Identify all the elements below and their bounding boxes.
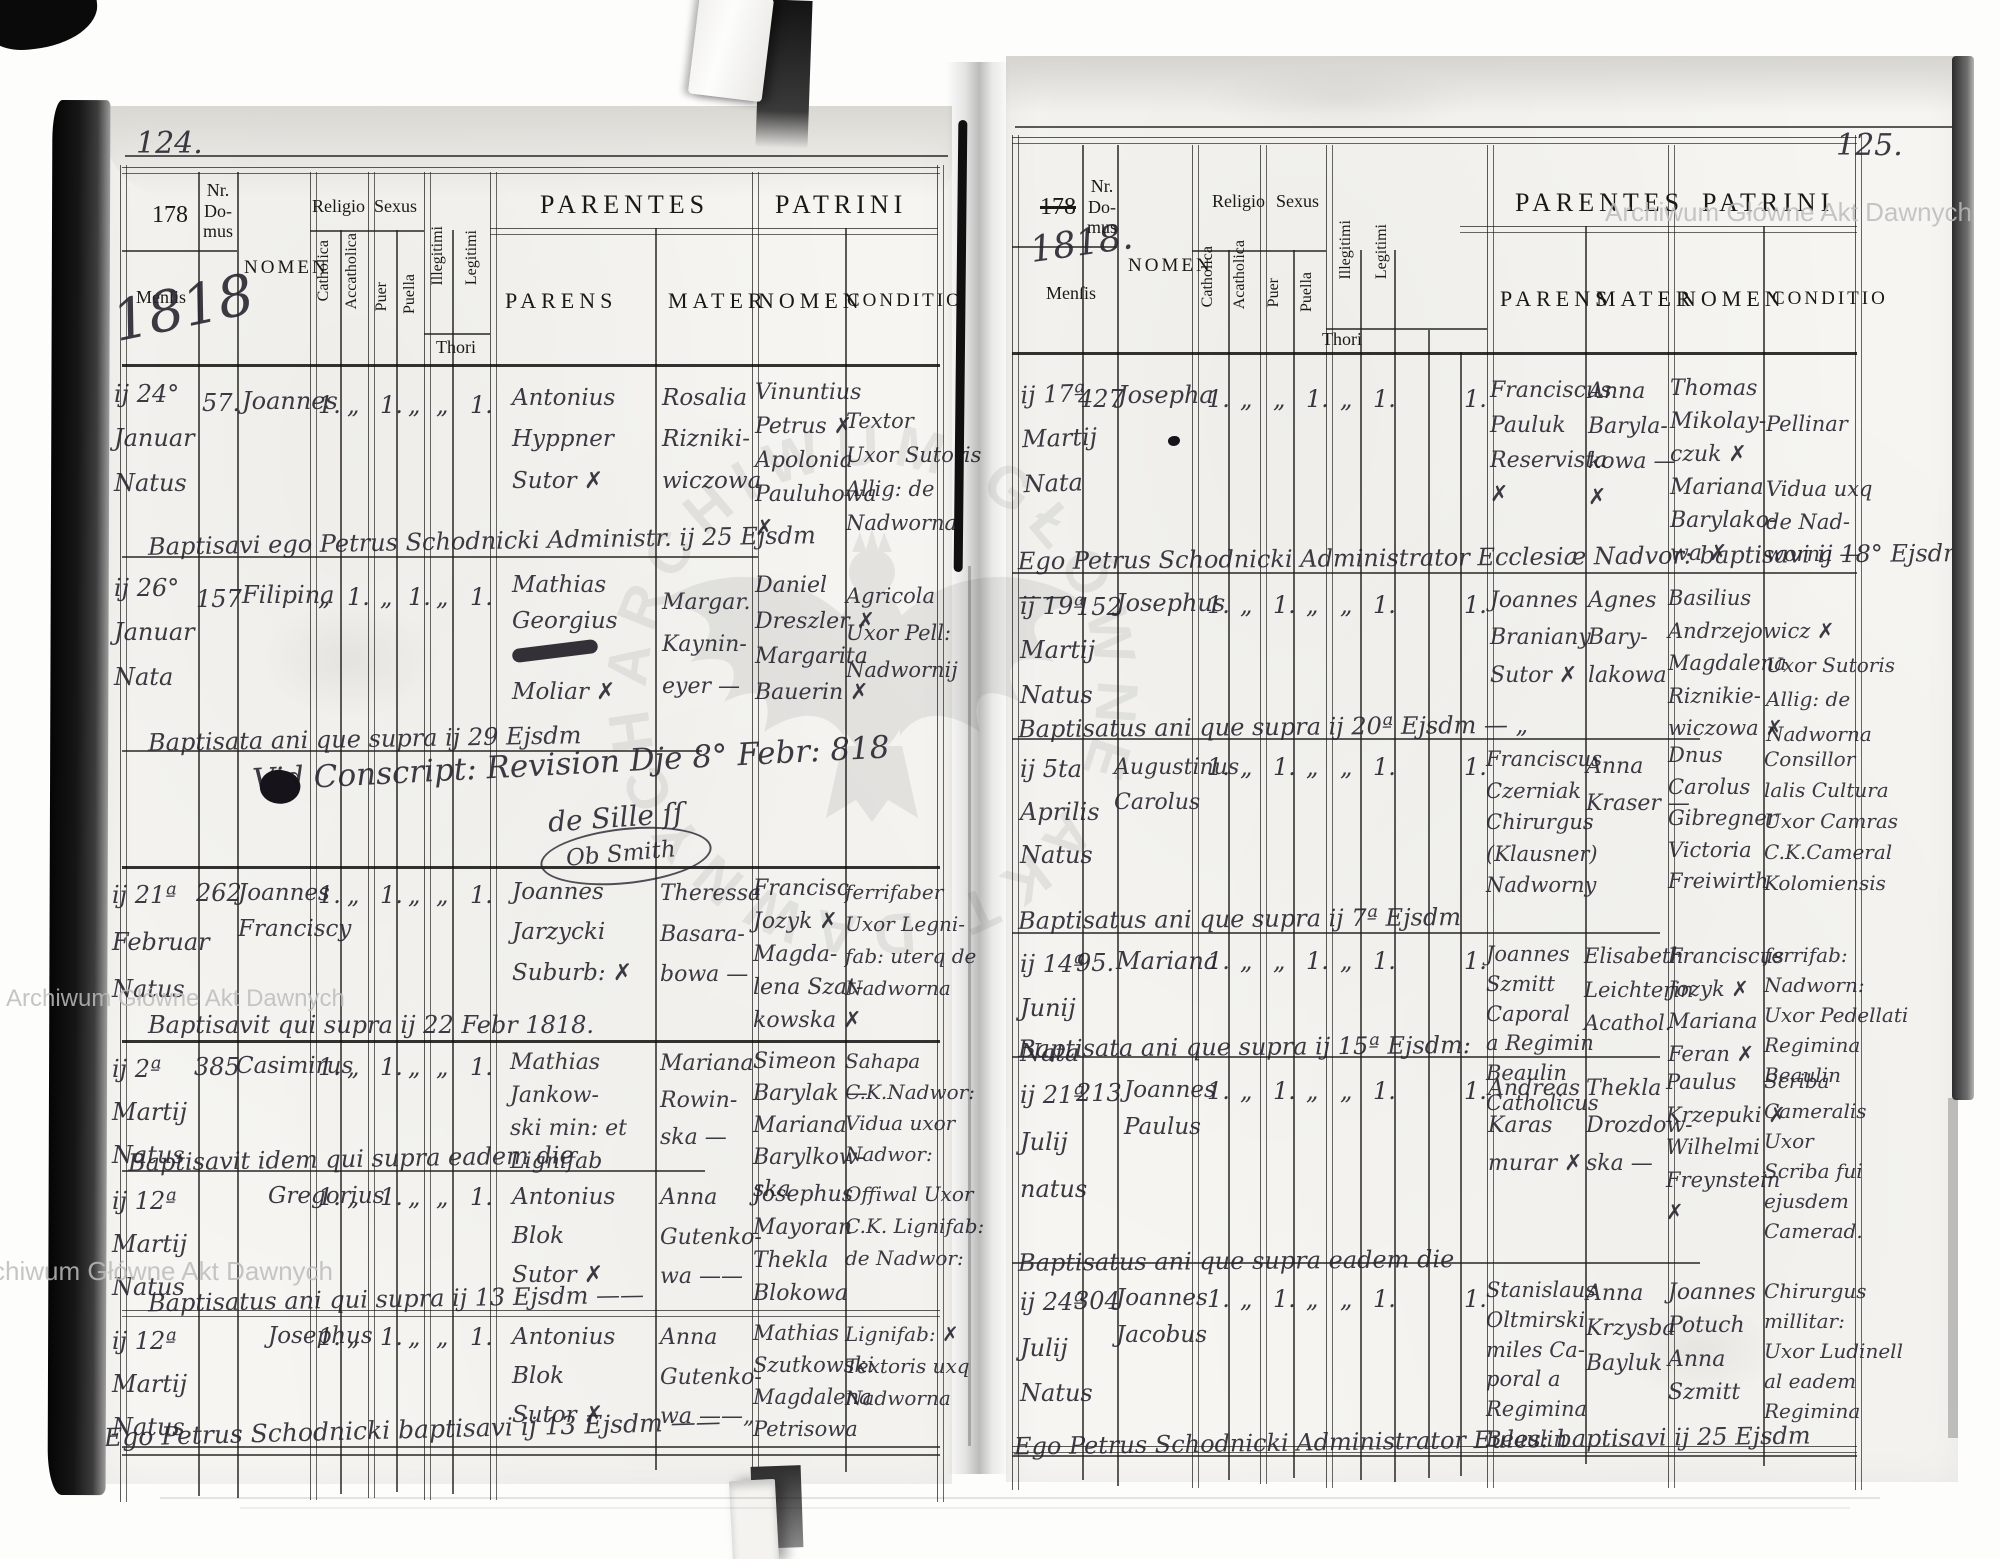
col-serial: 178 xyxy=(152,198,188,233)
mark-right-r3: „ xyxy=(1306,750,1318,785)
e3-baptism-note: Baptisatus ani que supra ij 7ª Ejsdm xyxy=(1018,900,1461,939)
mark-left-r6: „ xyxy=(436,1320,448,1355)
mark-left-r5: „ xyxy=(408,1180,420,1215)
mark-left-r3: 1. xyxy=(318,878,341,913)
e4-mater: Mariana Rowin- ska — xyxy=(660,1046,754,1157)
mark-left-r2: „ xyxy=(380,580,392,615)
col-puer: Puer xyxy=(1266,278,1282,307)
e5-baptism-note: Baptisatus ani que supra eadem die xyxy=(1018,1242,1455,1281)
register-book-scan: ARCHIWUM GŁÓWNE AKT DAWNYCH 124.178Nr. D… xyxy=(0,0,2000,1559)
grid-hline xyxy=(1015,126,1952,128)
e6-nomen: Joannes Jacobus xyxy=(1116,1280,1208,1354)
mark-left-r4: „ xyxy=(347,1050,359,1085)
mark-left-r1: 1. xyxy=(380,388,403,423)
grid-hline xyxy=(1012,352,1857,355)
col-patrini: PATRINI xyxy=(775,186,907,224)
mark-left-r2: „ xyxy=(318,580,330,615)
e2-baptism-note: Baptisatus ani que supra ij 20ª Ejsdm — … xyxy=(1018,708,1528,747)
mark-left-r1: „ xyxy=(436,388,448,423)
mark-right-r1: 1. xyxy=(1207,382,1230,417)
page-number-right: 125. xyxy=(1836,124,1903,168)
page-stack-line xyxy=(240,1507,1850,1509)
mark-left-r5: 1. xyxy=(318,1180,341,1215)
col-puella: Puella xyxy=(1299,272,1315,312)
mark-right-r1-extra: 1. xyxy=(1464,382,1487,417)
e2-mensis: ij 26° Januar Nata xyxy=(114,566,195,699)
col-mensis: Menſis xyxy=(1046,280,1096,306)
mark-right-r1: 1. xyxy=(1306,382,1329,417)
mark-left-r2: 1. xyxy=(347,580,370,615)
mark-right-r3: 1. xyxy=(1273,750,1296,785)
e6-patrini-nomen: Joannes Potuch Anna Szmitt xyxy=(1668,1276,1756,1410)
e1-house-nr: 427 xyxy=(1078,382,1124,417)
e1-parens: Antonius Hyppner Sutor ✗ xyxy=(512,378,615,502)
col-patrini-nomen: NOMEN xyxy=(1680,283,1786,315)
mark-left-r2: 1. xyxy=(470,580,493,615)
mark-right-r1: „ xyxy=(1273,382,1285,417)
mark-right-r5: 1. xyxy=(1373,1074,1396,1109)
center-fold-shadow xyxy=(946,62,1010,1474)
col-illegitimi: Illegitimi xyxy=(1338,220,1354,280)
mark-right-r1: „ xyxy=(1340,382,1352,417)
page-number-left: 124. xyxy=(136,122,203,166)
mark-left-r5: „ xyxy=(436,1180,448,1215)
e2-conditio: Agricola Uxor Pell: Nadwornij xyxy=(846,578,958,688)
e1-mensis: ij 24° Januar Natus xyxy=(114,372,195,505)
grid-vline xyxy=(1260,145,1267,1484)
col-thori: Thori xyxy=(1322,326,1362,352)
mark-left-r6: „ xyxy=(347,1320,359,1355)
e6-mater: Anna Krzysba Bayluk xyxy=(1586,1276,1675,1382)
mark-right-r4-extra: 1. xyxy=(1464,944,1487,979)
col-religio: Religio xyxy=(1212,188,1265,214)
mark-left-r5: 1. xyxy=(470,1180,493,1215)
mark-left-r2: „ xyxy=(436,580,448,615)
bookmark-ribbon-bottom xyxy=(729,1479,779,1559)
bookmark-ribbon-top xyxy=(688,0,774,102)
grid-vline xyxy=(1012,135,1019,1490)
mark-right-r2: 1. xyxy=(1373,588,1396,623)
grid-hline xyxy=(122,167,940,174)
mark-left-r6: 1. xyxy=(470,1320,493,1355)
mark-left-r6: „ xyxy=(408,1320,420,1355)
mark-left-r5: 1. xyxy=(380,1180,403,1215)
e2-parens: Mathias Georgius Moliar ✗ xyxy=(512,568,618,711)
e5-conditio: Scriba Cameralis Uxor Scriba fui ejusdem… xyxy=(1764,1066,1867,1246)
e4-house-nr: 95. xyxy=(1076,946,1114,981)
col-sexus: Sexus xyxy=(1276,188,1319,214)
mark-right-r6: „ xyxy=(1240,1282,1252,1317)
mark-right-r4: „ xyxy=(1273,944,1285,979)
archive-watermark-mid-left: Archiwum Główne Akt Dawnych xyxy=(6,985,345,1013)
e2-conditio: Uxor Sutoris Allig: de Nadworna xyxy=(1766,648,1895,751)
mark-right-r6-extra: 1. xyxy=(1464,1282,1487,1317)
e3-baptism-note: Baptisavit qui supra ij 22 Febr 1818. xyxy=(148,1008,594,1043)
e2-mater: Agnes Bary- lakowa xyxy=(1588,582,1667,694)
e2-mater: Margar. Kaynin- eyer — xyxy=(662,582,750,707)
mark-right-r4: 1. xyxy=(1207,944,1230,979)
grid-hline xyxy=(310,230,424,232)
col-mater: MATER xyxy=(668,285,768,317)
col-legitimi: Legitimi xyxy=(1374,224,1390,279)
grid-hline xyxy=(122,364,940,367)
e5-parens: Andreas Karas murar ✗ xyxy=(1488,1070,1583,1182)
mark-right-r3: 1. xyxy=(1373,750,1396,785)
mark-left-r1: 1. xyxy=(470,388,493,423)
col-nr-domus: Nr. Do- mus xyxy=(199,180,237,242)
e3-conditio: Consillor lalis Cultura Uxor Camras C.K.… xyxy=(1764,744,1898,899)
mark-left-r3: 1. xyxy=(470,878,493,913)
grid-hline xyxy=(1012,137,1857,144)
e4-house-nr: 385 xyxy=(194,1050,240,1085)
mark-right-r6: 1. xyxy=(1207,1282,1230,1317)
e1-house-nr: 57. xyxy=(202,386,240,421)
col-parentes: PARENTES xyxy=(540,186,709,224)
e1-mater: Rosalia Rizniki- wiczowa xyxy=(662,378,761,502)
mark-right-r1: „ xyxy=(1240,382,1252,417)
e6-conditio: Chirurgus millitar: Uxor Ludinell al ead… xyxy=(1764,1276,1903,1426)
grid-hline xyxy=(490,228,938,235)
col-illegitimi: Illegitimi xyxy=(430,226,446,286)
mark-right-r4: „ xyxy=(1340,944,1352,979)
mark-left-r4: 1. xyxy=(380,1050,403,1085)
col-religio: Religio xyxy=(312,193,365,219)
e2-house-nr: 152 xyxy=(1076,590,1122,625)
grid-hline xyxy=(122,866,940,869)
mark-right-r3: „ xyxy=(1240,750,1252,785)
mark-right-r6: „ xyxy=(1306,1282,1318,1317)
mark-left-r4: 1. xyxy=(470,1050,493,1085)
dark-corner-top-left xyxy=(0,0,101,54)
archive-watermark-bottom-left: Archiwum Główne Akt Dawnych xyxy=(0,1256,333,1287)
grid-hline xyxy=(122,1454,940,1456)
book-right-edge-lower xyxy=(1948,1098,1958,1438)
mark-right-r5: 1. xyxy=(1207,1074,1230,1109)
mark-right-r3-extra: 1. xyxy=(1464,750,1487,785)
e3-mater: Theressa Basara- bowa — xyxy=(660,874,761,996)
mark-left-r1: „ xyxy=(347,388,359,423)
col-puer: Puer xyxy=(374,282,390,311)
col-acatholica: Acatholica xyxy=(1232,240,1248,309)
page-stack-line xyxy=(160,1497,1880,1499)
col-catholica: Catholica xyxy=(1200,246,1216,307)
mark-left-r2: 1. xyxy=(408,580,431,615)
mark-left-r1: „ xyxy=(408,388,420,423)
e5-patrini-nomen: Josephus Mayoran Thekla Blokowa xyxy=(753,1178,853,1310)
e6-house-nr: 304 xyxy=(1074,1284,1120,1319)
col-acatholica: Accatholica xyxy=(344,233,360,309)
e3-parens: Joannes Jarzycki Suburb: ✗ xyxy=(512,872,632,993)
mark-right-r2-extra: 1. xyxy=(1464,588,1487,623)
e5-house-nr: 213 xyxy=(1076,1076,1122,1111)
mark-right-r2: 1. xyxy=(1273,588,1296,623)
e4-nomen: Mariana xyxy=(1116,944,1218,979)
mark-right-r5: „ xyxy=(1240,1074,1252,1109)
mark-left-r3: 1. xyxy=(380,878,403,913)
e1-mater: Anna Baryla- kowa — ✗ xyxy=(1588,374,1676,515)
col-conditio: CONDITIO xyxy=(1772,285,1888,313)
paper-smudge xyxy=(1200,64,1480,134)
mark-right-r2: „ xyxy=(1306,588,1318,623)
col-legitimi: Legitimi xyxy=(464,230,480,285)
mark-right-r3: „ xyxy=(1340,750,1352,785)
col-catholica: Catholica xyxy=(316,240,332,301)
mark-right-r6: „ xyxy=(1340,1282,1352,1317)
mark-left-r3: „ xyxy=(436,878,448,913)
col-puella: Puella xyxy=(402,274,418,314)
mark-right-r6: 1. xyxy=(1273,1282,1296,1317)
mark-right-r4: 1. xyxy=(1306,944,1329,979)
e5-mater: Anna Gutenko- wa —— xyxy=(660,1178,762,1297)
mark-left-r3: „ xyxy=(408,878,420,913)
mark-right-r6: 1. xyxy=(1373,1282,1396,1317)
mark-left-r4: „ xyxy=(436,1050,448,1085)
e5-nomen: Joannes Paulus xyxy=(1124,1072,1216,1146)
mark-right-r5: 1. xyxy=(1273,1074,1296,1109)
grid-hline xyxy=(125,155,948,157)
mark-left-r3: „ xyxy=(347,878,359,913)
e3-mensis: ij 5ta Aprilis Natus xyxy=(1020,748,1100,878)
paper-smudge xyxy=(260,600,440,720)
e2-house-nr: 157 xyxy=(196,582,242,617)
e3-house-nr: 262 xyxy=(196,876,242,911)
e3-patrini-nomen: Dnus Carolus Gibregner Victoria Freiwirt… xyxy=(1668,740,1777,898)
col-sexus: Sexus xyxy=(374,193,417,219)
mark-right-r2: 1. xyxy=(1207,588,1230,623)
mark-left-r6: 1. xyxy=(318,1320,341,1355)
col-nr-domus: Nr. Do- mus xyxy=(1084,176,1120,238)
spine-gutter-line-lower xyxy=(968,566,971,1446)
mark-right-r3: 1. xyxy=(1207,750,1230,785)
mark-right-r5: „ xyxy=(1340,1074,1352,1109)
mark-left-r4: 1. xyxy=(318,1050,341,1085)
e4-baptism-note: Baptisata ani que supra ij 15ª Ejsdm: xyxy=(1018,1028,1471,1067)
e1-nomen: Josepha xyxy=(1118,378,1214,413)
col-parens: PARENS xyxy=(505,285,617,317)
e3-parens: Franciscus Czerniak Chirurgus (Klausner)… xyxy=(1486,744,1602,902)
mark-right-r4: „ xyxy=(1240,944,1252,979)
grid-hline xyxy=(122,250,237,252)
mark-left-r4: „ xyxy=(408,1050,420,1085)
mark-right-r2: „ xyxy=(1240,588,1252,623)
mark-right-r4: 1. xyxy=(1373,944,1396,979)
mark-right-r1: 1. xyxy=(1373,382,1396,417)
mark-left-r5: „ xyxy=(347,1180,359,1215)
mark-right-r5-extra: 1. xyxy=(1464,1074,1487,1109)
mark-left-r6: 1. xyxy=(380,1320,403,1355)
mark-right-r2: „ xyxy=(1340,588,1352,623)
col-thori: Thori xyxy=(436,334,476,360)
mark-left-r1: 1. xyxy=(318,388,341,423)
archive-watermark-top-right: Archiwum Główne Akt Dawnych xyxy=(1605,197,1972,228)
grid-vline xyxy=(1360,250,1362,1480)
page-right-top-stain xyxy=(1006,56,1956,114)
e2-parens: Joannes Braniany Sutor ✗ xyxy=(1490,582,1591,694)
mark-right-r5: „ xyxy=(1306,1074,1318,1109)
